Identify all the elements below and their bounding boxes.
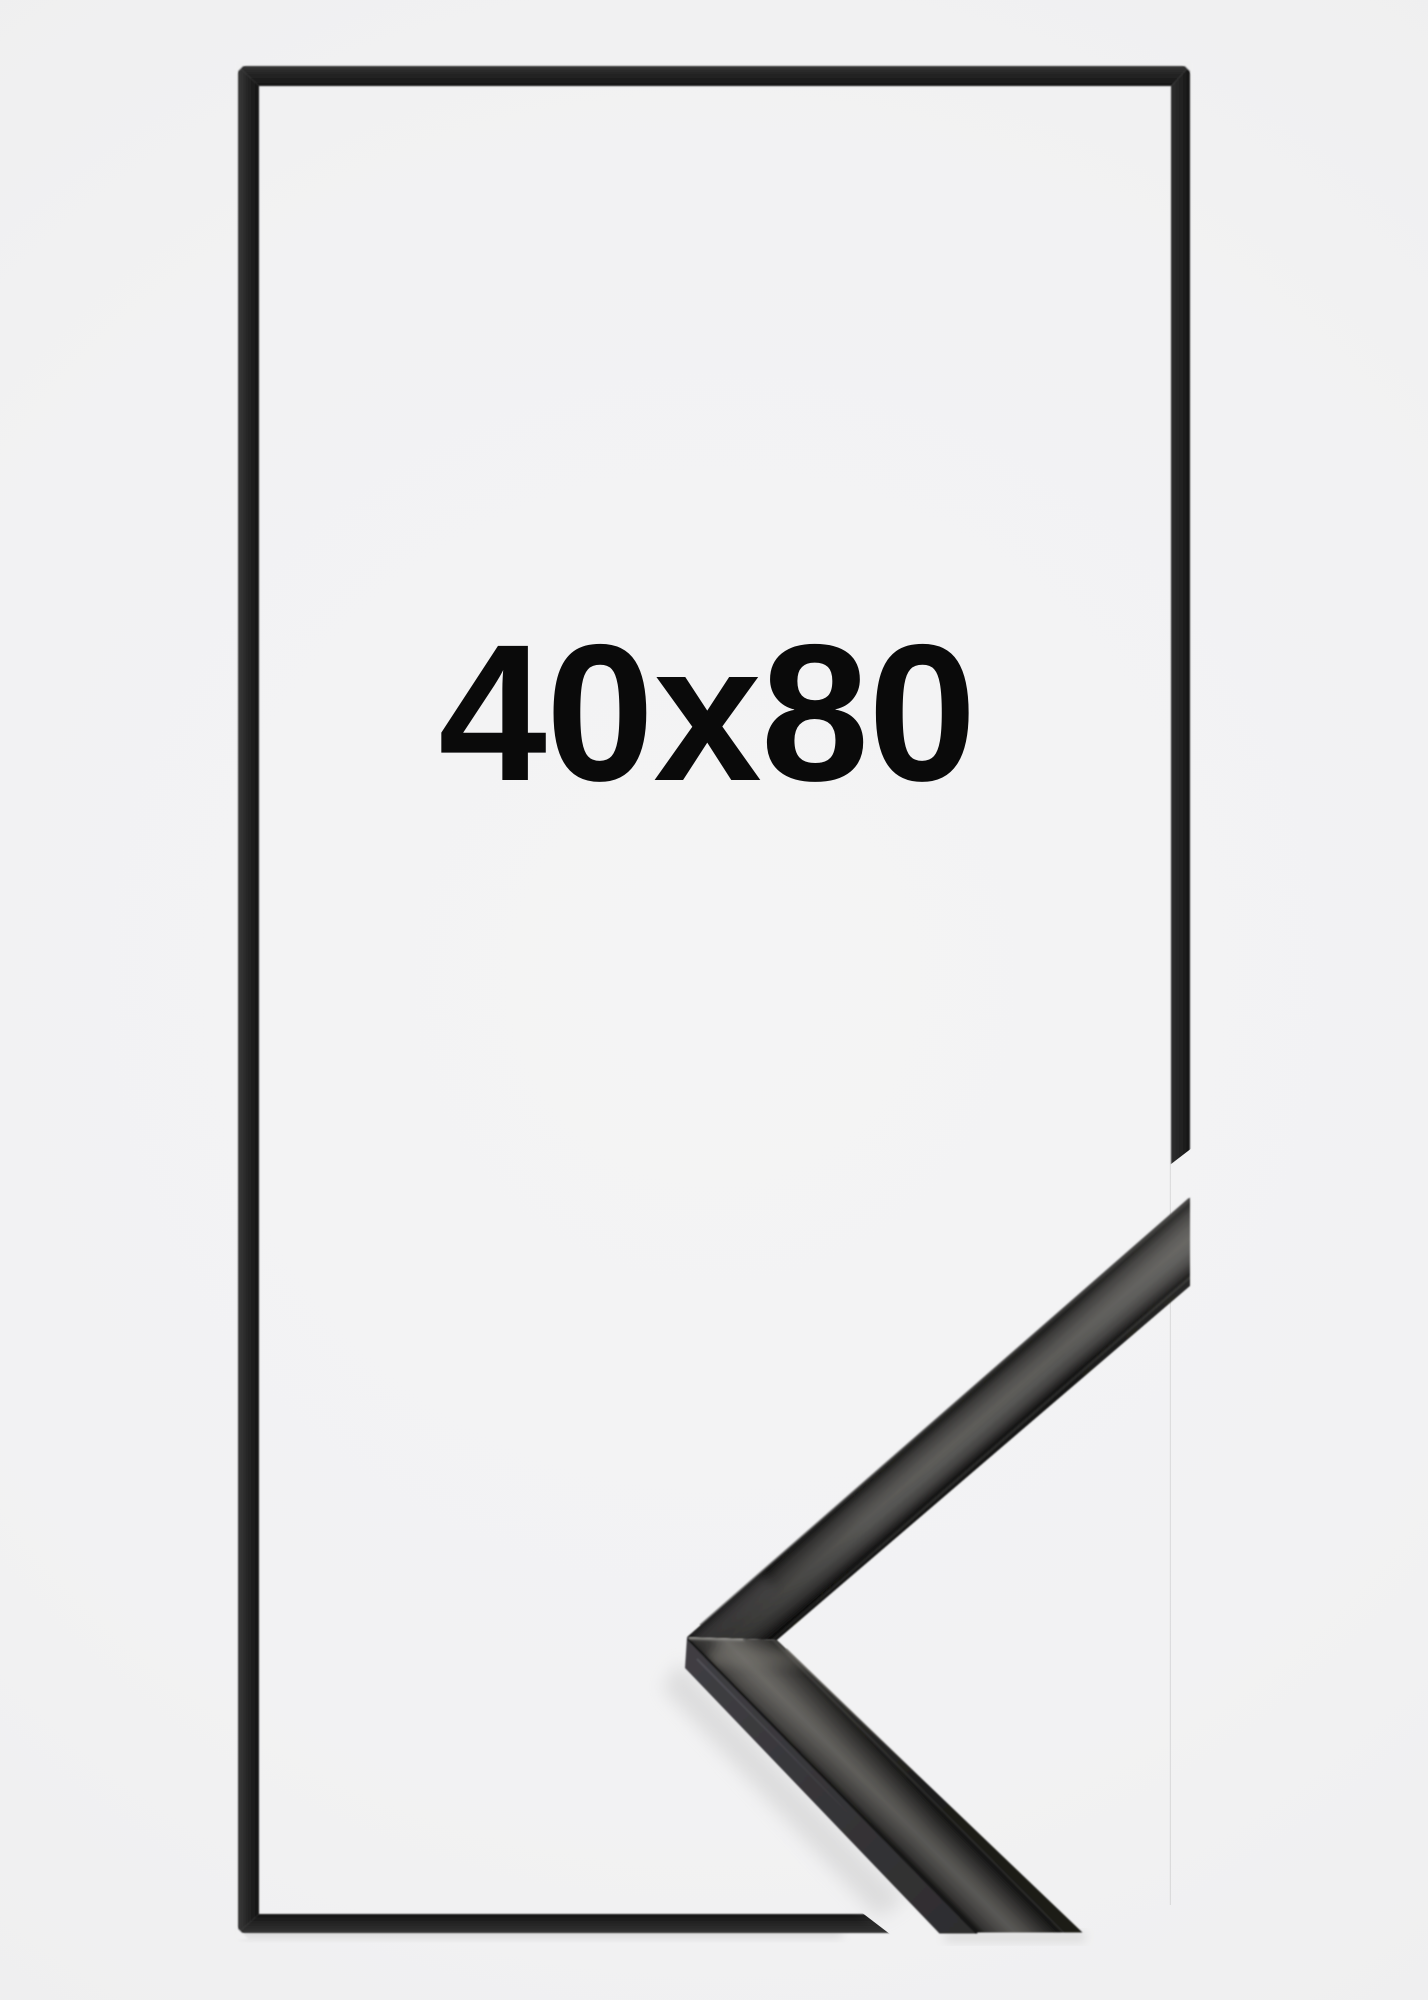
svg-text:40x80: 40x80 <box>438 604 975 822</box>
